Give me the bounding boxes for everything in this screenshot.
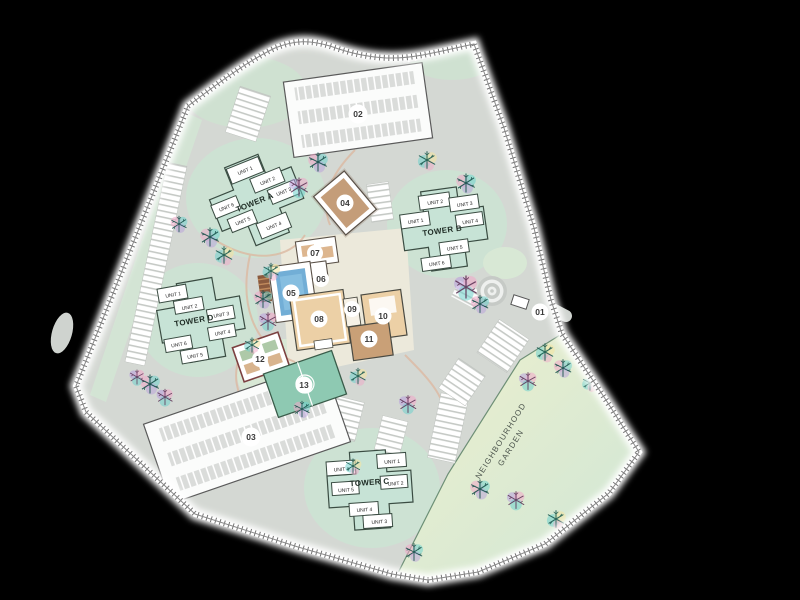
marker-06[interactable]: 06 xyxy=(313,271,329,287)
svg-text:09: 09 xyxy=(347,304,357,314)
svg-text:03: 03 xyxy=(246,432,256,442)
tower-c-unit4: UNIT 4 xyxy=(356,507,372,514)
svg-text:06: 06 xyxy=(316,274,326,284)
marker-04[interactable]: 04 xyxy=(337,195,354,212)
svg-text:04: 04 xyxy=(340,198,350,208)
site-plan-canvas: NEIGHBOURHOOD GARDEN xyxy=(0,0,800,600)
marker-08[interactable]: 08 xyxy=(311,311,328,328)
marker-12[interactable]: 12 xyxy=(252,351,268,367)
svg-text:02: 02 xyxy=(353,109,363,119)
marker-10[interactable]: 10 xyxy=(375,308,392,325)
svg-text:13: 13 xyxy=(299,380,309,390)
tower-c-unit3: UNIT 3 xyxy=(371,519,387,526)
side-entrance-stub xyxy=(47,310,78,356)
svg-text:11: 11 xyxy=(365,334,374,344)
marker-03[interactable]: 03 xyxy=(242,428,261,447)
svg-text:05: 05 xyxy=(286,288,296,298)
svg-text:07: 07 xyxy=(310,248,320,258)
marker-11[interactable]: 11 xyxy=(361,331,378,348)
svg-text:08: 08 xyxy=(314,314,324,324)
marker-13[interactable]: 13 xyxy=(296,377,313,394)
tower-c-unit1: UNIT 1 xyxy=(384,459,400,466)
svg-text:10: 10 xyxy=(378,311,388,321)
tower-c-unit2: UNIT 2 xyxy=(388,481,404,488)
marker-02[interactable]: 02 xyxy=(349,105,368,124)
svg-text:01: 01 xyxy=(535,307,545,317)
site-plan-map: NEIGHBOURHOOD GARDEN xyxy=(0,0,800,600)
marker-07[interactable]: 07 xyxy=(307,245,323,261)
marker-01[interactable]: 01 xyxy=(532,304,549,321)
marker-09[interactable]: 09 xyxy=(344,301,360,317)
svg-text:12: 12 xyxy=(255,354,265,364)
marker-05[interactable]: 05 xyxy=(283,285,300,302)
